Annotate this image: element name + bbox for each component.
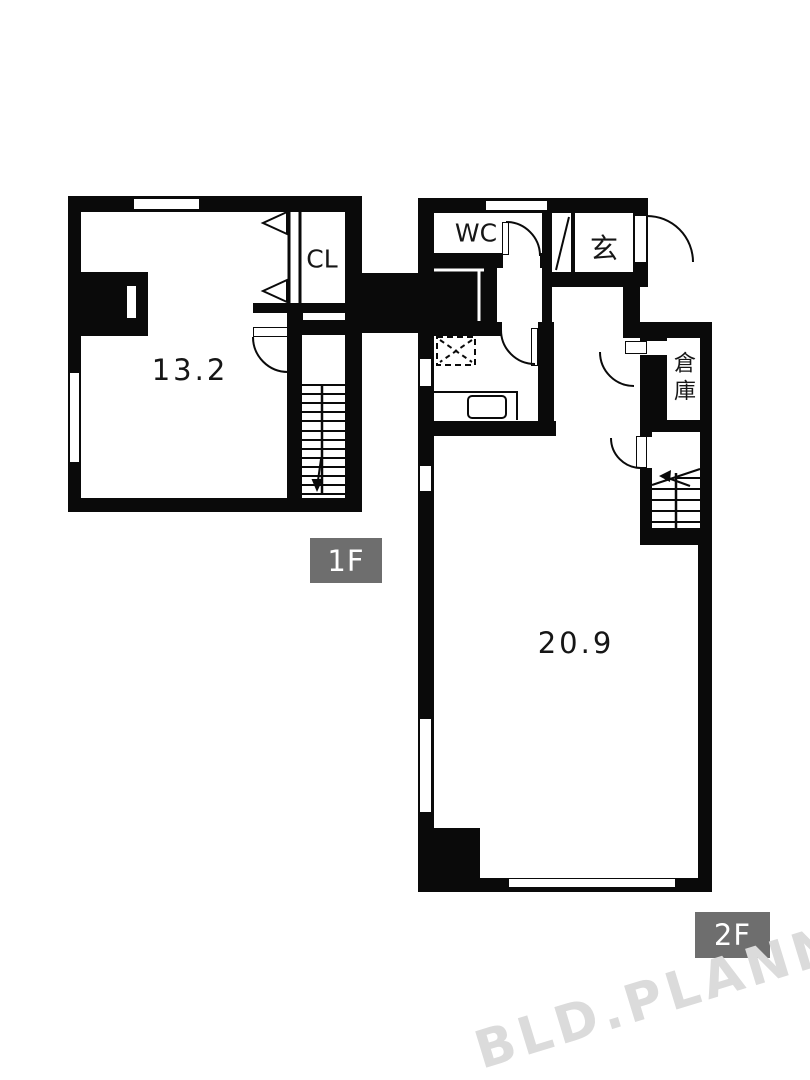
door-swing-icon	[501, 330, 535, 364]
sink-icon	[434, 392, 517, 420]
floor-badge-1f: 1F	[310, 538, 382, 583]
wall-opening	[303, 313, 345, 320]
room-area-1f: 13.2	[152, 353, 229, 387]
door-leaf	[253, 327, 288, 337]
wall-segment	[68, 498, 362, 512]
folding-door-icon	[263, 212, 287, 302]
stairs-up-icon	[652, 469, 700, 528]
pillar-block	[68, 272, 148, 336]
door-leaf	[502, 222, 509, 255]
door-opening	[503, 253, 540, 268]
window	[419, 718, 432, 813]
wall-segment	[623, 287, 640, 338]
room-area-2f: 20.9	[538, 626, 615, 660]
door-leaf	[634, 215, 647, 263]
floor-plan-canvas: 13.2 CL WC 玄 倉庫 20.9 1F 2F BLD.PLANNER	[0, 0, 810, 1080]
door-leaf	[625, 341, 647, 354]
door-swing-icon	[647, 216, 693, 262]
entrance-label: 玄	[590, 227, 618, 267]
pillar-block	[418, 828, 480, 892]
closet-partition	[289, 212, 300, 305]
door-swing-icon	[600, 352, 634, 386]
window	[133, 198, 200, 210]
wall-segment	[418, 421, 556, 436]
window	[419, 358, 432, 387]
closet-label: CL	[306, 245, 337, 274]
entry-step-line	[556, 217, 569, 270]
door-swing-icon	[253, 337, 288, 372]
wall-segment	[345, 196, 362, 512]
stairs-down-icon	[302, 385, 345, 495]
storage-label: 倉庫	[666, 351, 698, 407]
wall-segment	[287, 335, 302, 512]
wall-segment	[640, 420, 700, 432]
wall-segment	[698, 545, 712, 892]
shaft-block	[434, 268, 497, 322]
pillar-slit	[127, 286, 136, 318]
window	[419, 465, 432, 492]
wall-segment	[700, 322, 712, 545]
wc-label: WC	[455, 219, 497, 248]
door-leaf	[636, 436, 647, 468]
door-swing-icon	[506, 222, 540, 256]
window	[69, 372, 80, 463]
wall-segment	[68, 196, 81, 512]
wall-segment	[434, 322, 502, 336]
wall-segment	[640, 528, 712, 545]
window	[485, 200, 548, 211]
wall-segment	[68, 196, 362, 212]
washing-machine-icon	[437, 337, 475, 365]
wall-segment	[542, 213, 552, 322]
door-leaf	[531, 328, 538, 366]
wall-segment	[571, 213, 575, 272]
wall-segment	[253, 303, 289, 313]
wall-segment	[538, 322, 554, 436]
window	[508, 878, 676, 888]
connector-wall	[362, 273, 418, 333]
